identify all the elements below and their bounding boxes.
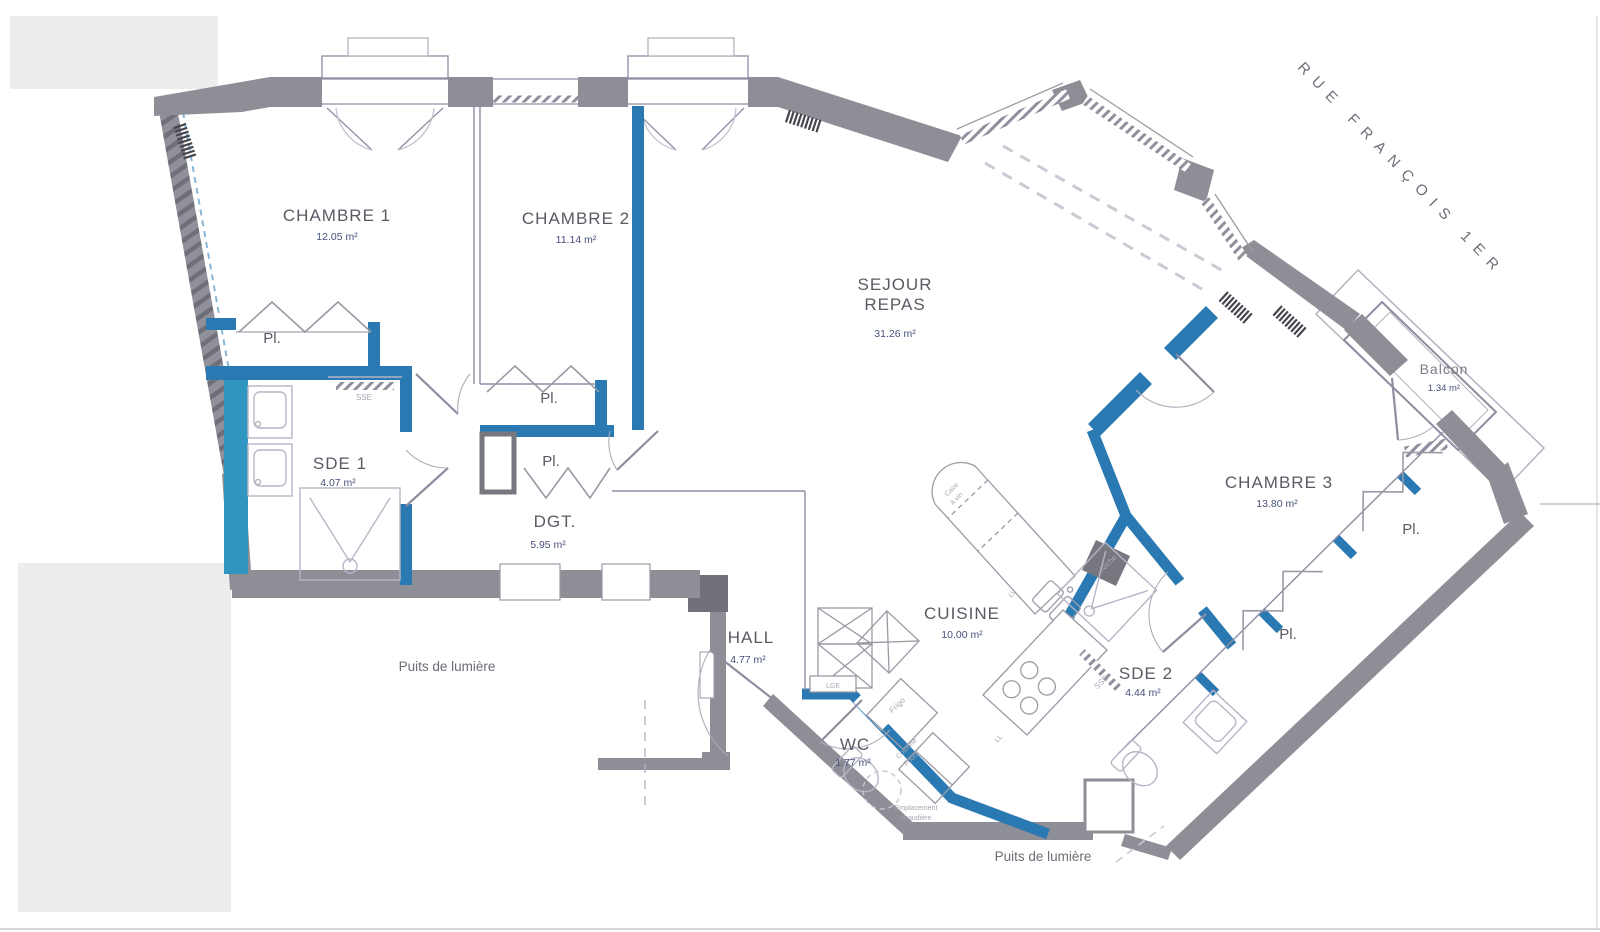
light-well-label-left: Puits de lumière <box>399 659 496 674</box>
floor-plan: RUE FRANÇOIS 1ER CHAMBRE 1 12.05 m² CHAM… <box>0 0 1600 932</box>
room-label-chambre3: CHAMBRE 3 <box>1225 473 1333 492</box>
room-label-hall: HALL <box>728 628 775 647</box>
room-area-sde2: 4.44 m² <box>1125 687 1161 699</box>
street-label: RUE FRANÇOIS 1ER <box>1294 59 1508 280</box>
doors <box>406 354 1434 756</box>
guide-lines <box>985 146 1225 862</box>
room-area-dgt: 5.95 m² <box>530 539 566 551</box>
closet-label-dgt: Pl. <box>542 453 560 470</box>
room-label-dgt: DGT. <box>534 512 577 531</box>
room-area-balcon: 1.34 m² <box>1428 383 1460 394</box>
room-area-hall: 4.77 m² <box>730 654 766 666</box>
room-area-sde1: 4.07 m² <box>320 477 356 489</box>
closet-label-chambre2: Pl. <box>540 390 558 407</box>
floor-plan-drawing: RUE FRANÇOIS 1ER CHAMBRE 1 12.05 m² CHAM… <box>0 0 1600 932</box>
room-label-chambre2: CHAMBRE 2 <box>522 209 630 228</box>
windows-top <box>322 38 748 150</box>
room-label-sejour-1: SEJOUR <box>858 275 933 294</box>
room-area-chambre2: 11.14 m² <box>556 234 597 246</box>
closet-label-chambre3-right: Pl. <box>1402 521 1420 538</box>
room-area-wc: 1.77 m² <box>835 757 871 769</box>
sse-label-sde1: SSE <box>356 393 372 402</box>
room-label-sde2: SDE 2 <box>1119 664 1173 683</box>
room-area-chambre1: 12.05 m² <box>316 231 358 243</box>
frigo-label: Frigo <box>888 695 908 715</box>
boiler-label-1: Emplacement <box>895 805 938 812</box>
room-label-chambre1: CHAMBRE 1 <box>283 206 391 225</box>
room-label-wc: WC <box>840 735 870 754</box>
room-label-balcon: Balcon <box>1420 361 1469 377</box>
room-area-cuisine: 10.00 m² <box>941 629 983 641</box>
room-label-sejour-2: REPAS <box>864 295 925 314</box>
light-well-label-bottom: Puits de lumière <box>995 849 1092 864</box>
closet-label-chambre3-lower: Pl. <box>1279 626 1297 643</box>
room-label-cuisine: CUISINE <box>924 604 1000 623</box>
ll-label: LL <box>994 734 1005 745</box>
room-label-sde1: SDE 1 <box>313 454 367 473</box>
room-area-chambre3: 13.80 m² <box>1256 498 1298 510</box>
room-area-sejour: 31.26 m² <box>874 328 916 340</box>
closet-label-chambre1: Pl. <box>263 330 281 347</box>
lge-label: LGE <box>826 683 840 690</box>
thin-partitions <box>236 107 1443 810</box>
boiler-label-2: chaudière <box>901 815 932 822</box>
